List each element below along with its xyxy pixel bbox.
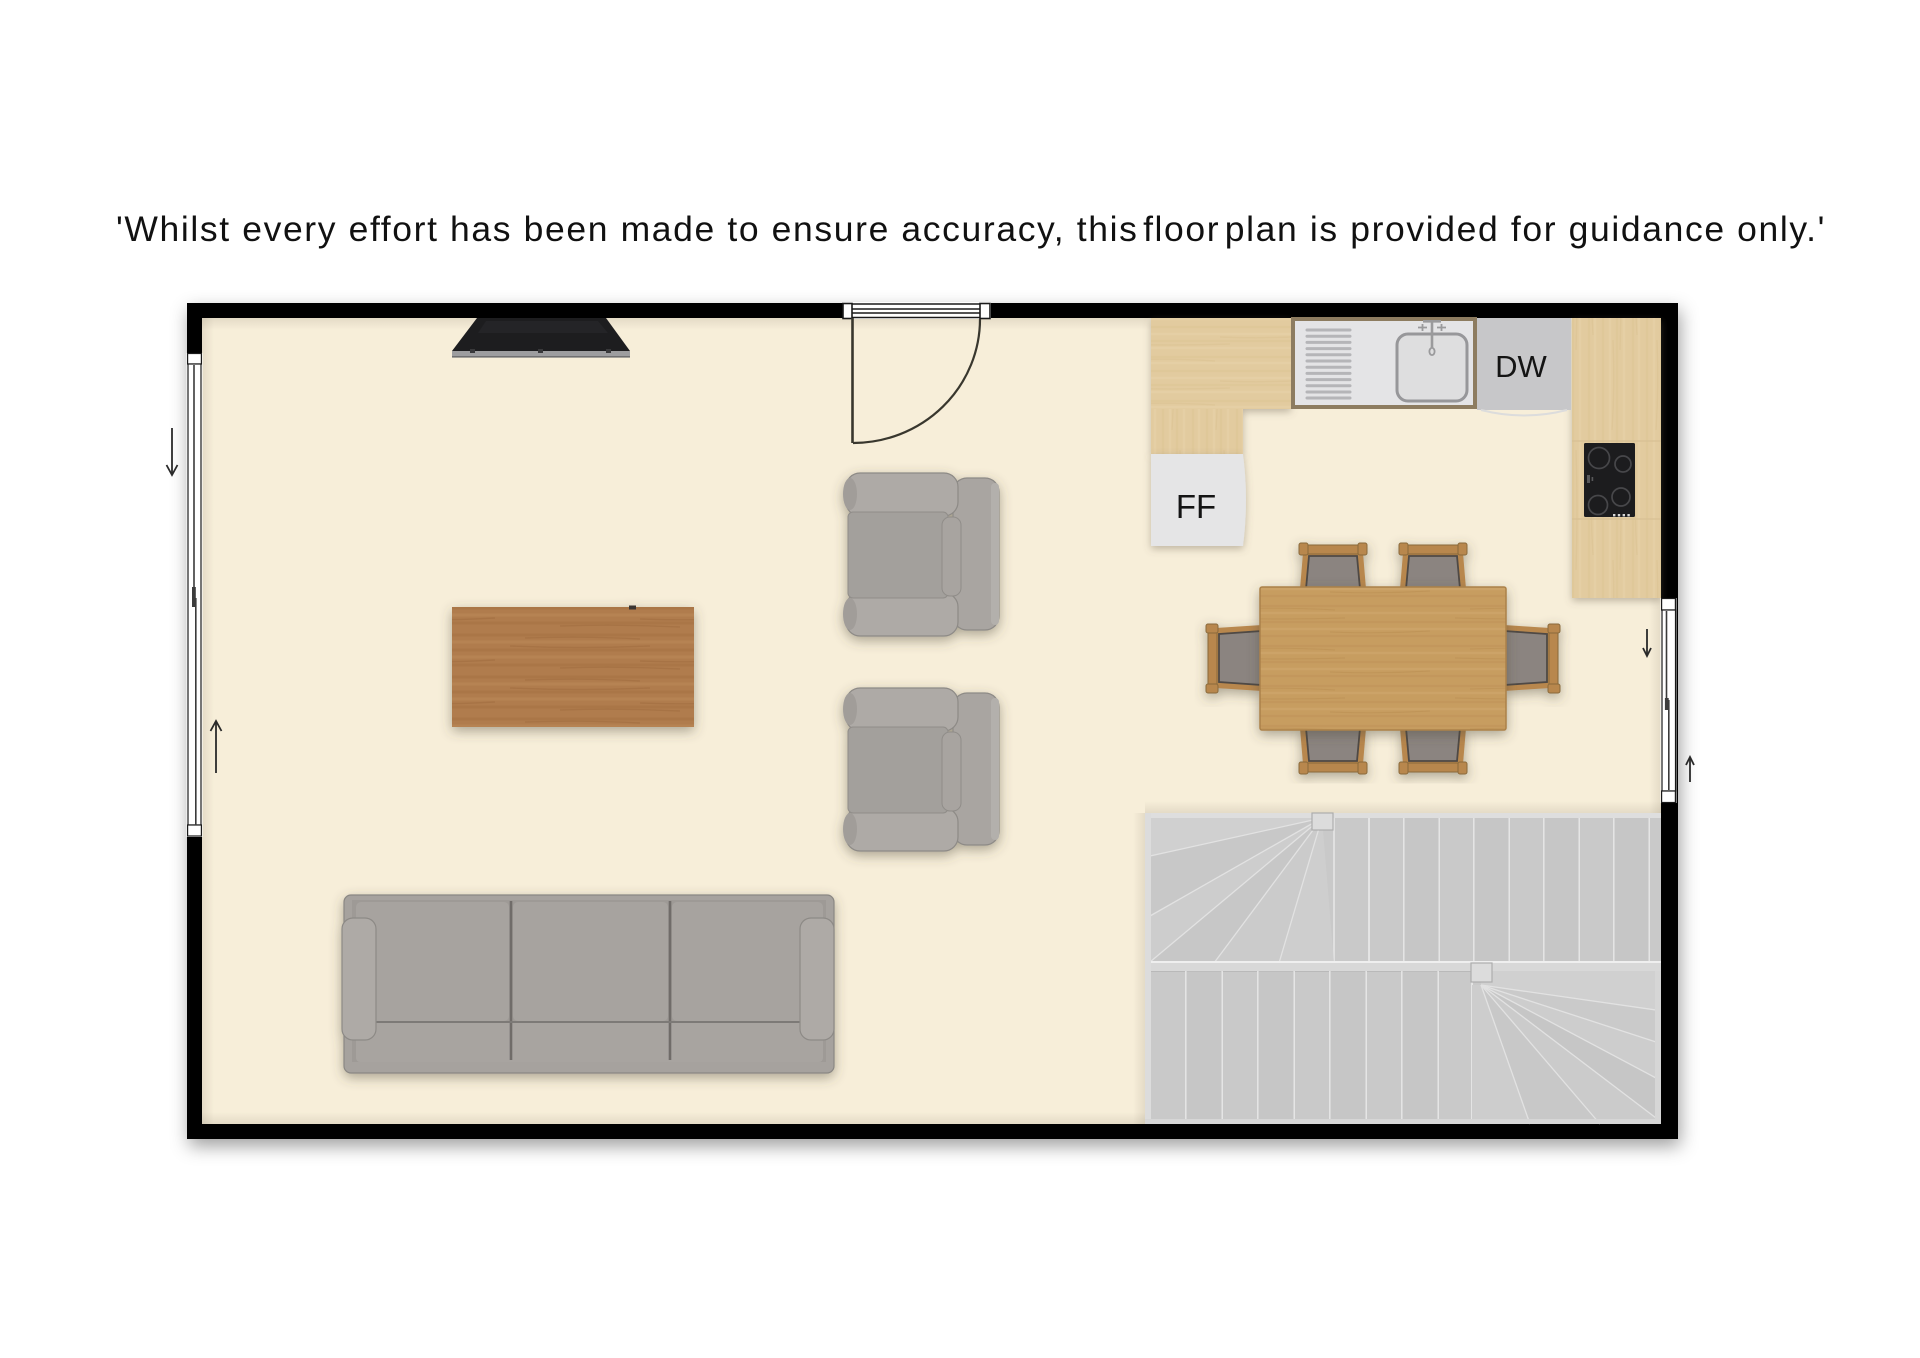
svg-text:DW: DW xyxy=(1495,349,1547,384)
svg-text:FF: FF xyxy=(1176,488,1216,525)
svg-text:'Whilst every effort has been: 'Whilst every effort has been made to en… xyxy=(116,209,1826,249)
